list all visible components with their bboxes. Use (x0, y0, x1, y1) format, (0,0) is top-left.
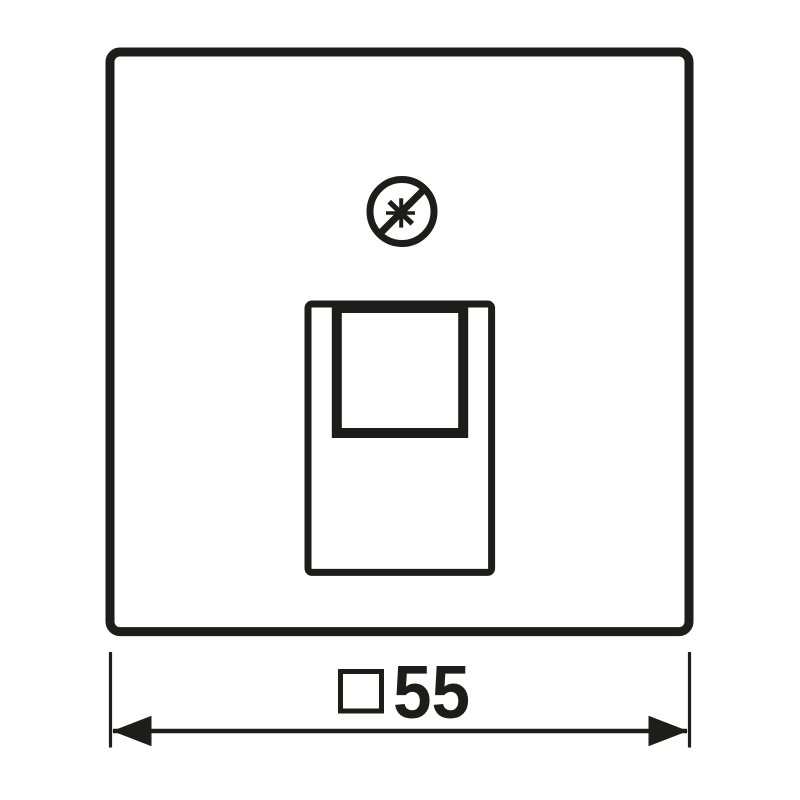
svg-text:55: 55 (393, 650, 470, 734)
